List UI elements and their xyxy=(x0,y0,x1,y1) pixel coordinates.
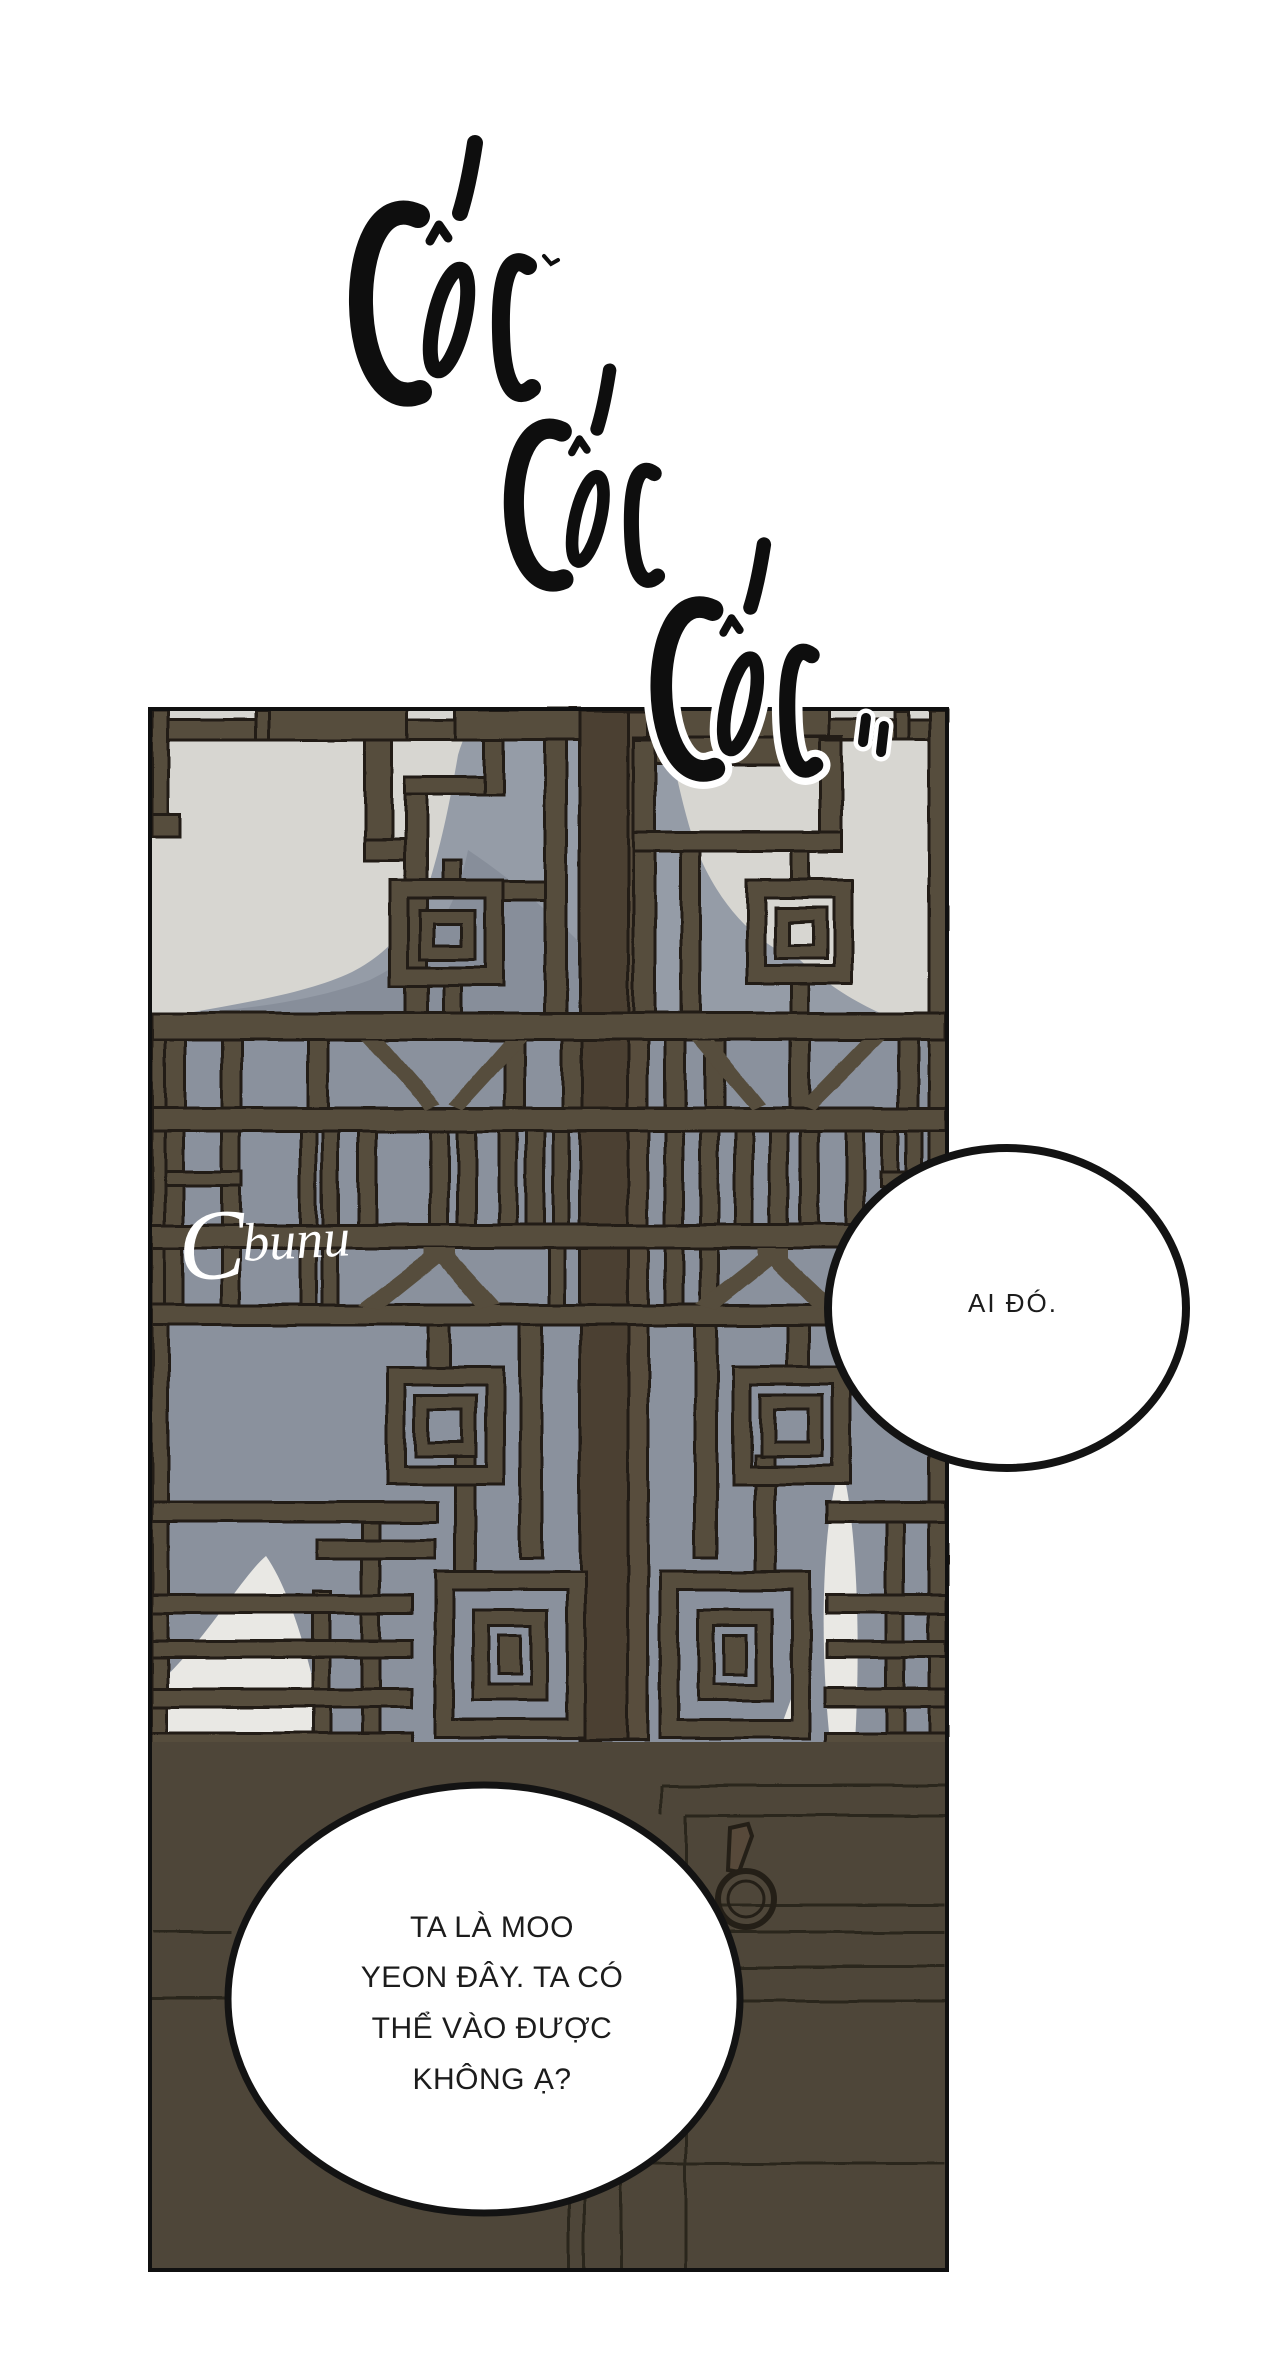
svg-text:C: C xyxy=(175,1188,249,1302)
svg-text:THỂ VÀO ĐƯỢC: THỂ VÀO ĐƯỢC xyxy=(372,2011,613,2045)
svg-text:AI ĐÓ.: AI ĐÓ. xyxy=(968,1288,1058,1318)
svg-text:TA LÀ MOO: TA LÀ MOO xyxy=(410,1911,574,1944)
svg-text:bunu: bunu xyxy=(241,1207,352,1273)
svg-text:YEON ĐÂY. TA CÓ: YEON ĐÂY. TA CÓ xyxy=(361,1961,624,1994)
svg-text:KHÔNG Ạ?: KHÔNG Ạ? xyxy=(412,2062,571,2096)
